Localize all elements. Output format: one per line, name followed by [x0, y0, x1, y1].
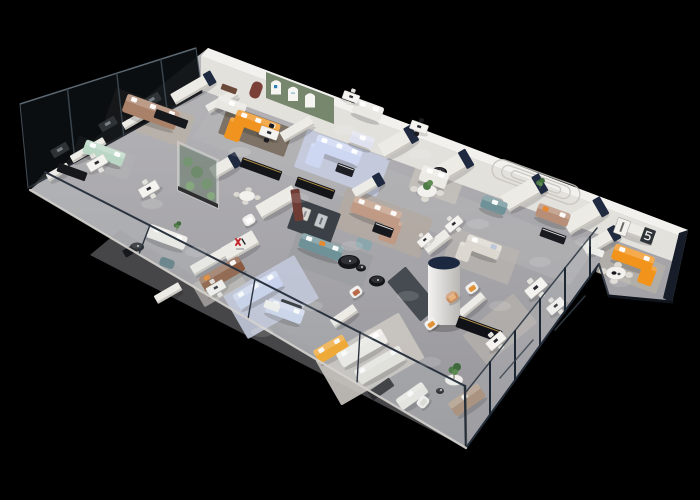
ceiling-light-glow [301, 301, 323, 311]
ceiling-light-glow [361, 329, 383, 339]
ceiling-light-glow [467, 219, 489, 229]
ceiling-light-glow [185, 247, 207, 257]
ceiling-light-glow [529, 257, 551, 267]
coffee-table-black [369, 276, 385, 287]
ceiling-light-glow [251, 327, 273, 337]
coffee-table-black [356, 265, 366, 272]
isometric-floorplan-svg: 3D isometric furniture showroom floor pl… [0, 0, 700, 500]
ceiling-light-glow [409, 149, 431, 159]
ceiling-light-glow [229, 147, 251, 157]
ceiling-light-glow [141, 199, 163, 209]
ceiling-light-glow [609, 277, 631, 287]
ceiling-light-glow [489, 301, 511, 311]
ceiling-light-glow [575, 237, 597, 247]
ceiling-light-glow [334, 125, 356, 135]
glass-corner-post [465, 386, 466, 448]
ceiling-light-glow [419, 357, 441, 367]
showroom-render-canvas: 3D isometric furniture showroom floor pl… [0, 0, 700, 500]
ceiling-light-glow [341, 241, 363, 251]
ceiling-light-glow [287, 193, 309, 203]
ceiling-light-glow [397, 291, 419, 301]
